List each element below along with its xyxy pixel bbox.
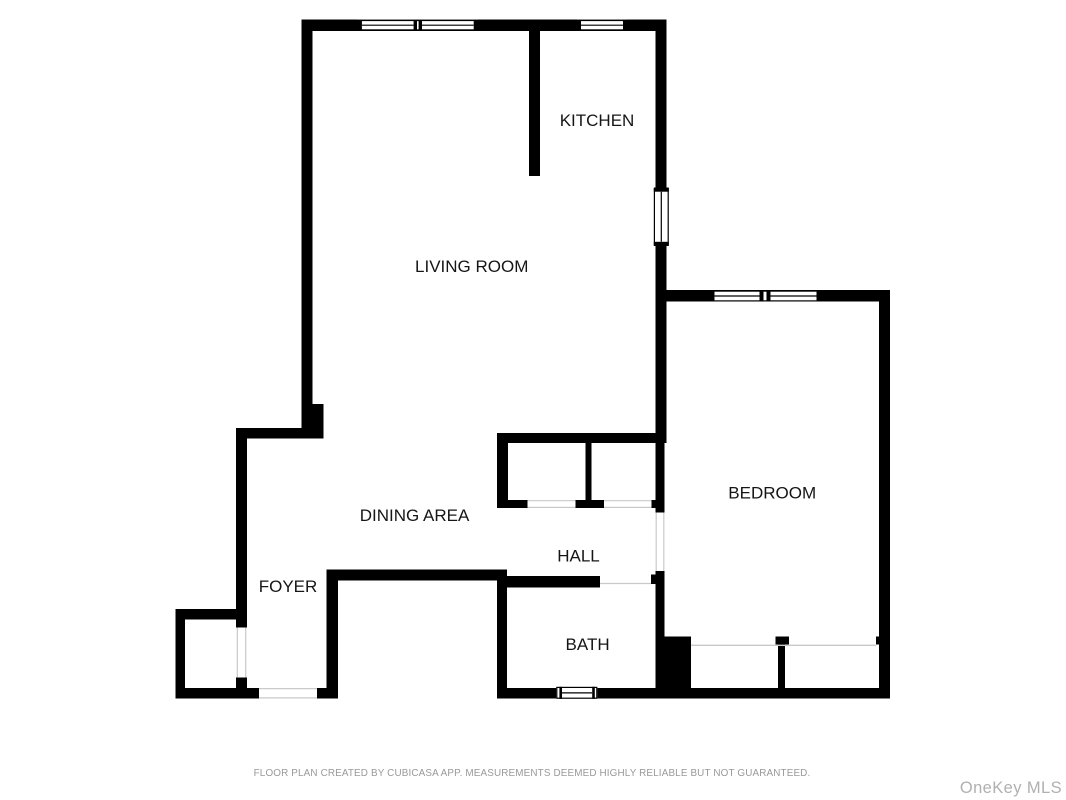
svg-text:FOYER: FOYER (259, 577, 318, 596)
svg-text:KITCHEN: KITCHEN (560, 111, 635, 130)
svg-text:DINING AREA: DINING AREA (360, 506, 470, 525)
svg-text:LIVING ROOM: LIVING ROOM (415, 257, 528, 276)
svg-text:HALL: HALL (557, 546, 600, 565)
svg-text:BEDROOM: BEDROOM (728, 484, 816, 503)
svg-text:BATH: BATH (566, 635, 610, 654)
svg-text:FLOOR PLAN CREATED BY CUBICASA: FLOOR PLAN CREATED BY CUBICASA APP. MEAS… (254, 768, 811, 779)
svg-text:OneKey MLS: OneKey MLS (960, 779, 1062, 797)
